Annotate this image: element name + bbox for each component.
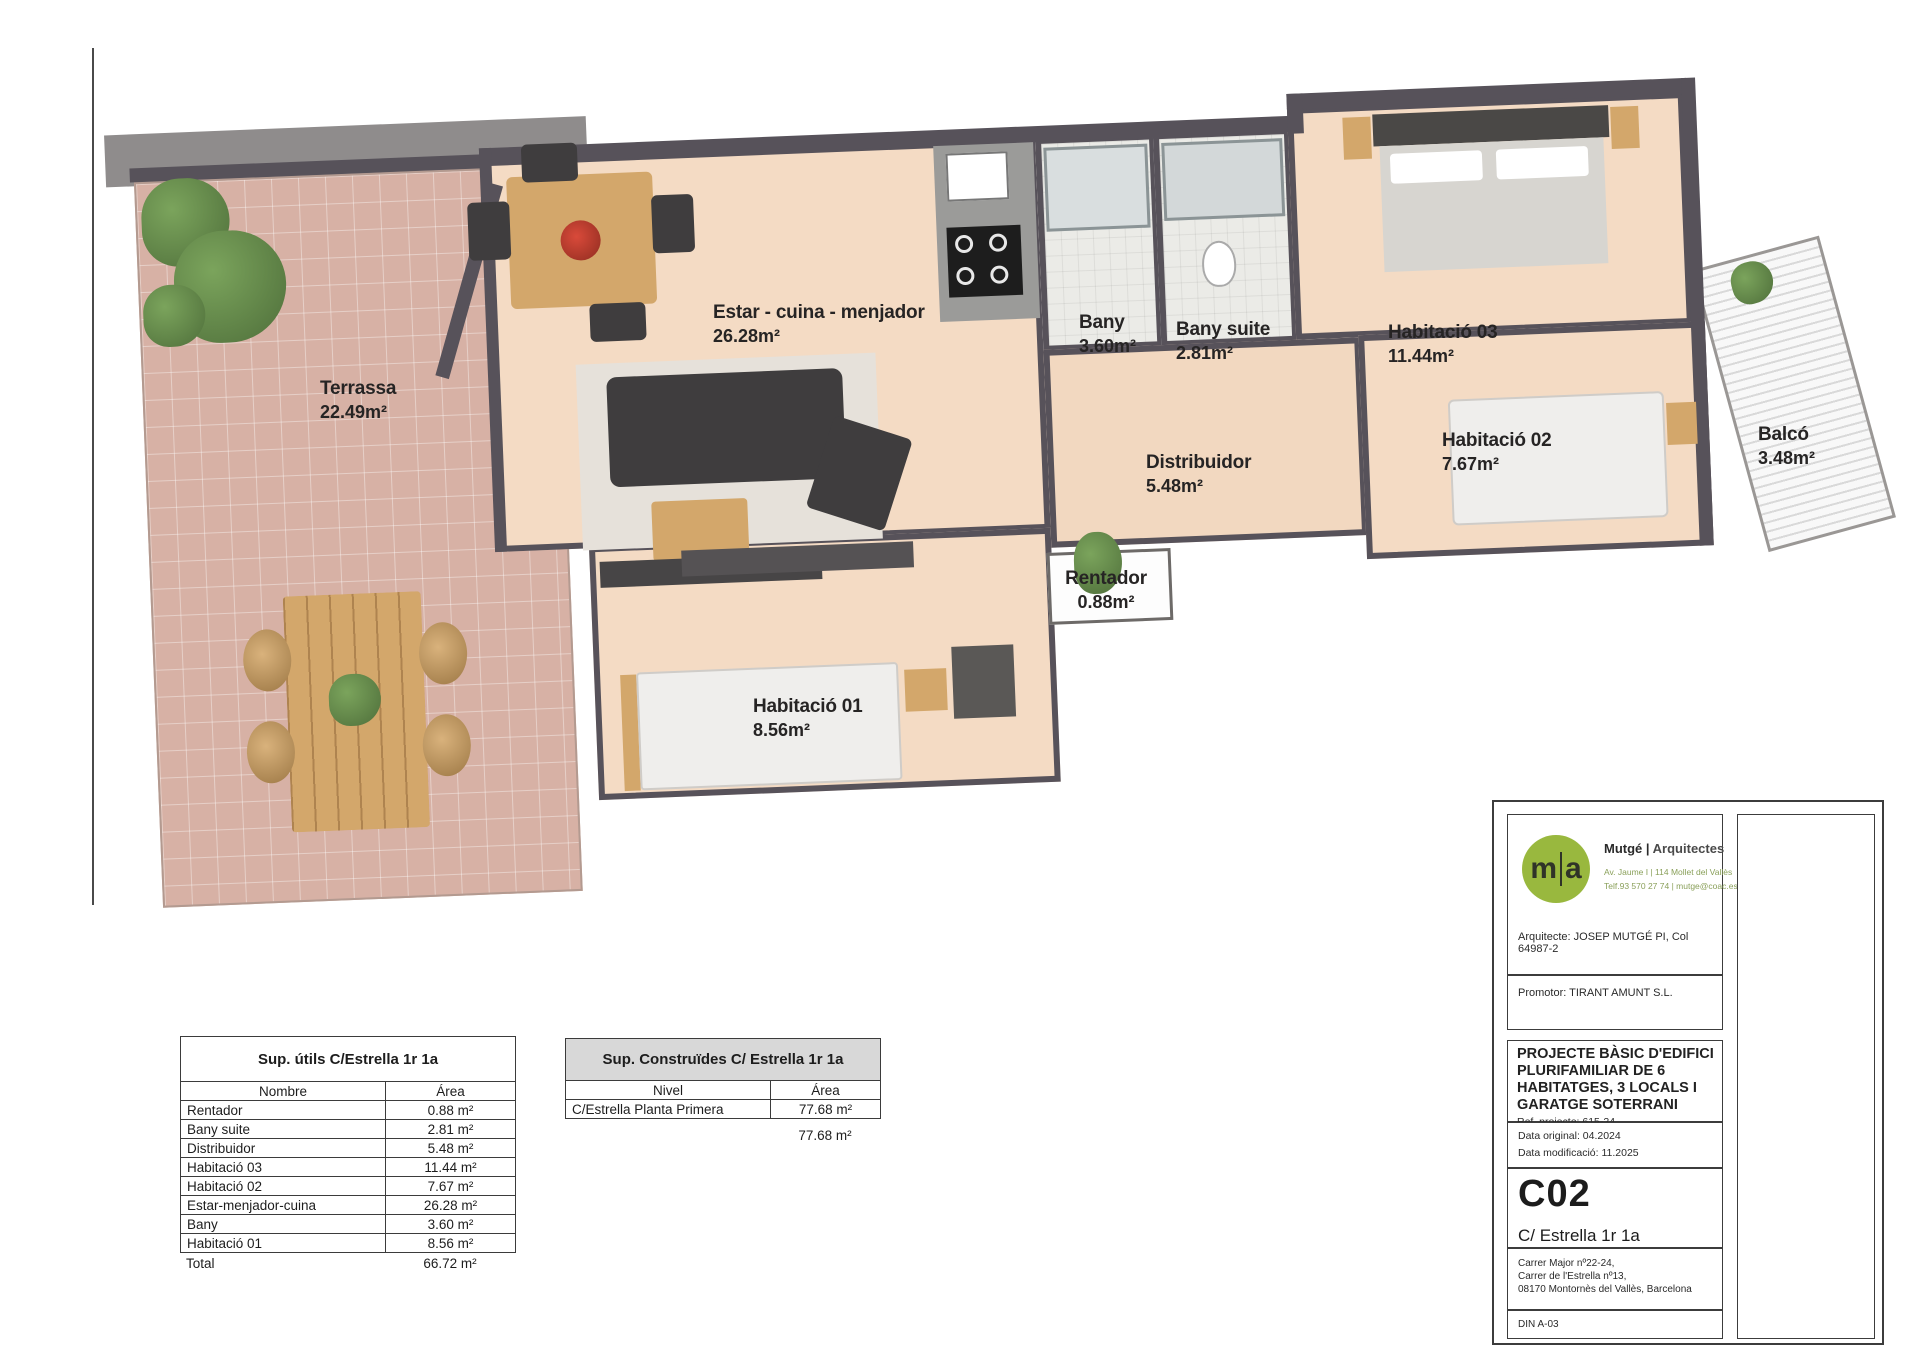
cell-name: Habitació 01 [181, 1234, 386, 1253]
built-total-value: 77.68 m² [770, 1128, 880, 1143]
table-row: Distribuidor 5.48 m² [181, 1139, 516, 1158]
burner-icon [990, 265, 1009, 284]
useful-areas-table: Sup. útils C/Estrella 1r 1a Nombre Área … [180, 1036, 516, 1253]
table-row: Rentador 0.88 m² [181, 1101, 516, 1120]
cell-name: Rentador [181, 1101, 386, 1120]
burner-icon [956, 267, 975, 286]
table-title: Sup. Construïdes C/ Estrella 1r 1a [566, 1039, 881, 1081]
kitchen-sink [945, 151, 1009, 201]
shower [1043, 144, 1150, 232]
dresser [951, 644, 1016, 718]
table-row: C/Estrella Planta Primera 77.68 m² [566, 1100, 881, 1119]
cell-area: 3.60 m² [386, 1215, 516, 1234]
cell-area: 26.28 m² [386, 1196, 516, 1215]
project-title-line: PROJECTE BÀSIC D'EDIFICI [1517, 1046, 1714, 1063]
table-row: Estar-menjador-cuina 26.28 m² [181, 1196, 516, 1215]
project-title-line: GARATGE SOTERRANI [1517, 1097, 1714, 1114]
cell-level: C/Estrella Planta Primera [566, 1100, 771, 1119]
sheet-box: C02 C/ Estrella 1r 1a [1507, 1168, 1723, 1248]
cell-name: Estar-menjador-cuina [181, 1196, 386, 1215]
hallway-floor [1043, 337, 1368, 548]
burner-icon [989, 233, 1008, 252]
dining-chair [521, 142, 578, 182]
bed [1448, 391, 1669, 526]
burner-icon [955, 235, 974, 254]
firm-logo: ma [1522, 835, 1590, 903]
fold-mark [92, 48, 94, 905]
architect-line: Arquitecte: JOSEP MUTGÉ PI, Col 64987-2 [1518, 931, 1722, 955]
firm-name: Mutgé | Arquitectes [1604, 841, 1724, 856]
cell-name: Bany suite [181, 1120, 386, 1139]
cell-area: 8.56 m² [386, 1234, 516, 1253]
cell-name: Bany [181, 1215, 386, 1234]
table-total-label: Total [186, 1256, 215, 1271]
cell-area: 7.67 m² [386, 1177, 516, 1196]
date-modified: Data modificació: 11.2025 [1518, 1145, 1639, 1161]
logo-divider [1560, 852, 1562, 886]
nightstand [1666, 402, 1698, 445]
cell-area: 5.48 m² [386, 1139, 516, 1158]
bed [636, 662, 903, 790]
firm-box: ma Mutgé | Arquitectes Av. Jaume I | 114… [1507, 814, 1723, 975]
pillow [1496, 146, 1589, 180]
table-total-value: 66.72 m² [385, 1256, 515, 1271]
project-title-line: PLURIFAMILIAR DE 6 [1517, 1063, 1714, 1080]
table-row: Habitació 01 8.56 m² [181, 1234, 516, 1253]
balcony-floor [1692, 236, 1896, 552]
site-address-line: Carrer de l'Estrella nº13, [1518, 1270, 1692, 1283]
table-row: Habitació 02 7.67 m² [181, 1177, 516, 1196]
site-address-box: Carrer Major nº22-24, Carrer de l'Estrel… [1507, 1248, 1723, 1310]
cell-area: 77.68 m² [771, 1100, 881, 1119]
paper-format: DIN A-03 [1518, 1318, 1559, 1331]
wall [1286, 93, 1304, 134]
promotor-line: Promotor: TIRANT AMUNT S.L. [1518, 987, 1673, 999]
dates-box: Data original: 04.2024 Data modificació:… [1507, 1122, 1723, 1168]
dining-chair [651, 194, 695, 254]
revision-column [1737, 814, 1875, 1339]
firm-suffix-text: Arquitectes [1653, 841, 1725, 856]
project-box: PROJECTE BÀSIC D'EDIFICI PLURIFAMILIAR D… [1507, 1040, 1723, 1122]
table-row: Bany suite 2.81 m² [181, 1120, 516, 1139]
built-areas-table: Sup. Construïdes C/ Estrella 1r 1a Nivel… [565, 1038, 881, 1119]
dining-chair [467, 201, 511, 261]
logo-letter-a: a [1565, 852, 1582, 886]
promotor-box: Promotor: TIRANT AMUNT S.L. [1507, 975, 1723, 1030]
paper-format-box: DIN A-03 [1507, 1310, 1723, 1339]
dining-chair [589, 302, 646, 342]
column-header: Área [386, 1082, 516, 1101]
nightstand [904, 668, 948, 712]
date-original: Data original: 04.2024 [1518, 1128, 1621, 1144]
cell-name: Habitació 03 [181, 1158, 386, 1177]
cell-area: 0.88 m² [386, 1101, 516, 1120]
firm-name-text: Mutgé | [1604, 841, 1650, 856]
sheet-code: C02 [1518, 1173, 1640, 1216]
title-block: ma Mutgé | Arquitectes Av. Jaume I | 114… [1492, 800, 1884, 1345]
cell-area: 11.44 m² [386, 1158, 516, 1177]
table-row: Habitació 03 11.44 m² [181, 1158, 516, 1177]
column-header: Área [771, 1081, 881, 1100]
column-header: Nivel [566, 1081, 771, 1100]
cell-name: Habitació 02 [181, 1177, 386, 1196]
column-header: Nombre [181, 1082, 386, 1101]
firm-address: Av. Jaume I | 114 Mollet del Vallès [1604, 867, 1732, 877]
table-row: Bany 3.60 m² [181, 1215, 516, 1234]
cooktop [946, 225, 1023, 298]
cell-area: 2.81 m² [386, 1120, 516, 1139]
shower [1161, 138, 1285, 221]
nightstand [1342, 117, 1372, 160]
site-address-line: 08170 Montornès del Vallès, Barcelona [1518, 1283, 1692, 1296]
project-title-line: HABITATGES, 3 LOCALS I [1517, 1080, 1714, 1097]
logo-letter-m: m [1530, 852, 1557, 886]
firm-contact: Telf.93 570 27 74 | mutge@coac.es [1604, 881, 1738, 891]
site-address-line: Carrer Major nº22-24, [1518, 1257, 1692, 1270]
sofa [606, 368, 846, 487]
cell-name: Distribuidor [181, 1139, 386, 1158]
pillow [1390, 150, 1483, 184]
table-title: Sup. útils C/Estrella 1r 1a [181, 1037, 516, 1082]
nightstand [1610, 106, 1640, 149]
sheet-name: C/ Estrella 1r 1a [1518, 1226, 1640, 1246]
